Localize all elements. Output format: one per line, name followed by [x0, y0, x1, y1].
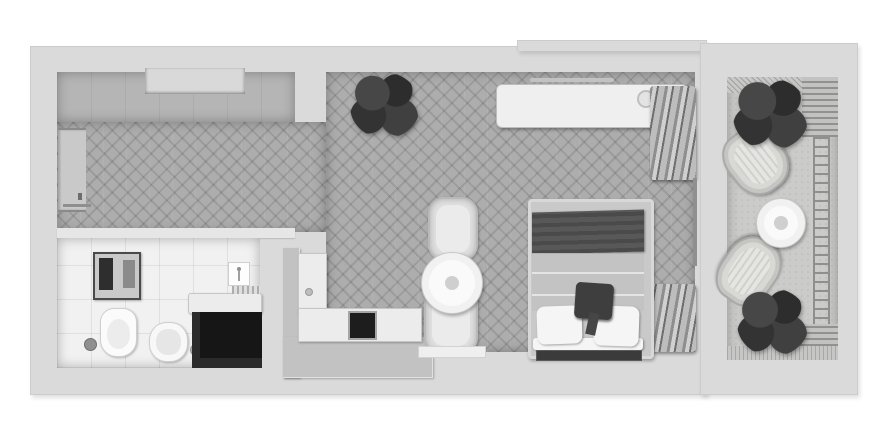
- dining-table: [421, 252, 483, 314]
- bed-blanket: [532, 210, 644, 255]
- balcony-plant-bottom: [737, 288, 809, 356]
- black-cabinet: [192, 312, 262, 368]
- toilet: [100, 308, 137, 357]
- clothes-rack-bottom: [648, 284, 696, 352]
- vanity-accessories: [232, 286, 260, 294]
- kitchen-tall-cabinet: [298, 253, 327, 315]
- toilet-brush: [84, 338, 97, 351]
- cooktop: [348, 311, 377, 340]
- washbasin: [149, 322, 188, 362]
- entry-hall-floor: [57, 122, 326, 232]
- shower-panel: [228, 262, 250, 286]
- wall-niche: [145, 68, 245, 94]
- floor-plan-canvas: [0, 0, 890, 440]
- vanity-counter: [188, 293, 262, 314]
- bed-rug: [536, 350, 642, 361]
- balcony-door: [693, 178, 697, 266]
- living-room-plant: [350, 72, 420, 138]
- clothes-rack-top: [650, 86, 696, 180]
- kitchen-wall-bottom: [283, 337, 433, 378]
- cabinet-knob: [305, 288, 313, 296]
- bathroom-door-line: [63, 204, 91, 207]
- entrance-door: [58, 128, 86, 212]
- building-top-step: [517, 40, 707, 51]
- doormat: [418, 346, 486, 358]
- wall-recess-line: [530, 78, 614, 82]
- balcony-railing: [813, 137, 830, 329]
- towel-rack: [93, 252, 141, 300]
- accent-pillow: [574, 282, 614, 321]
- hall-bathroom-wall: [57, 228, 295, 238]
- balcony-plant-top: [733, 78, 809, 150]
- coffee-table: [756, 198, 806, 248]
